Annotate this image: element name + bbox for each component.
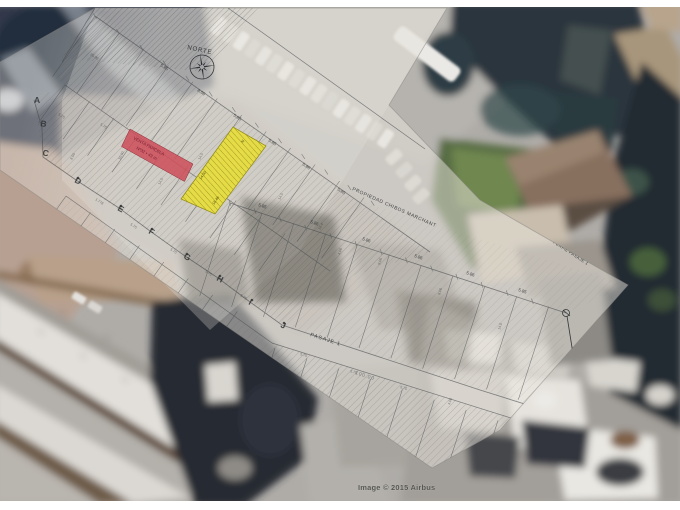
svg-text:A: A	[34, 95, 40, 105]
svg-text:Image © 2015 Airbus: Image © 2015 Airbus	[358, 483, 435, 492]
